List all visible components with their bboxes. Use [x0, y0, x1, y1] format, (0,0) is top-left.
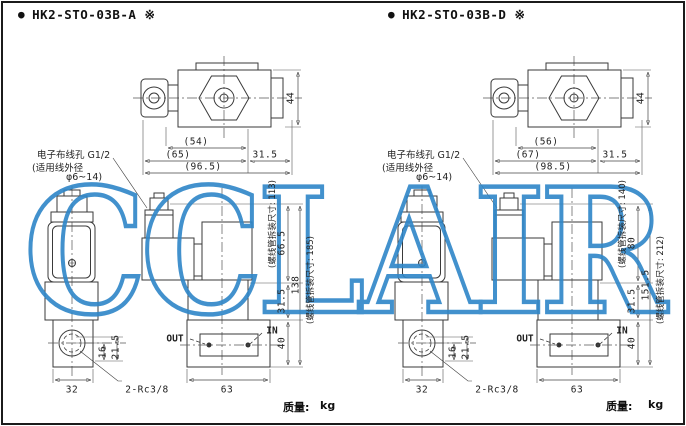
port-a-in-label: IN	[266, 326, 277, 337]
port-a-out-label: OUT	[166, 334, 183, 345]
port-d-thread-label: 2-Rc3/8	[474, 385, 520, 396]
dim-a-base-height: 40	[277, 337, 288, 349]
dim-a-front-width: 32	[65, 385, 79, 396]
dim-a-top-row2b: 31.5	[252, 150, 279, 161]
dim-d-top-row1: (56)	[533, 137, 560, 148]
conduit-note-a-line1: 电子布线孔 G1/2	[37, 147, 110, 161]
bullet-icon: ●	[388, 8, 395, 21]
weight-label-a: 质量:	[283, 399, 309, 415]
conduit-note-d-line3: φ6~14)	[416, 172, 452, 183]
port-d-in-label: IN	[616, 326, 627, 337]
dim-d-base-width: 63	[570, 385, 584, 396]
conduit-note-a-line3: φ6~14)	[66, 172, 102, 183]
dim-a-body-height: 31.5	[277, 289, 288, 314]
dim-a-total-height: 138	[291, 276, 302, 295]
weight-unit-a: kg	[320, 399, 335, 412]
conduit-note-d-line1: 电子布线孔 G1/2	[387, 147, 460, 161]
dim-d-body-height: 31.5	[627, 289, 638, 314]
figure-d-title: ● HK2-STO-03B-D ※	[388, 7, 525, 22]
valve-line-art: CCLAIR	[0, 0, 686, 426]
dim-a-top-row1: (54)	[183, 137, 210, 148]
watermark: CCLAIR	[24, 150, 668, 353]
dim-a-top-row3: (96.5)	[183, 162, 222, 173]
dim-a-top-height: 44	[286, 92, 297, 104]
dim-d-total-height: 151.5	[641, 269, 652, 300]
dim-d-port-offset2: 21.5	[461, 335, 472, 360]
drawing-sheet: CCLAIR ● HK2-STO-03B-A ※ 电子布线孔 G1/2 (适用线…	[0, 0, 686, 426]
dim-d-top-row3: (98.5)	[533, 162, 572, 173]
dim-d-top-row2b: 31.5	[602, 150, 629, 161]
port-a-thread-label: 2-Rc3/8	[124, 385, 170, 396]
note-d-solenoid-removal-upper: (螺线管拆装尺寸: 140)	[616, 180, 628, 268]
dim-d-top-height: 44	[636, 92, 647, 104]
dim-d-port-offset1: 16	[448, 346, 459, 358]
model-code-d: HK2-STO-03B-D ※	[402, 7, 525, 22]
bullet-icon: ●	[18, 8, 25, 21]
dim-a-port-offset2: 21.5	[111, 335, 122, 360]
dim-a-base-width: 63	[220, 385, 234, 396]
dim-a-coil-height: 66.5	[277, 231, 288, 256]
port-d-out-label: OUT	[516, 334, 533, 345]
figure-a-title: ● HK2-STO-03B-A ※	[18, 7, 155, 22]
dim-a-port-offset1: 16	[98, 346, 109, 358]
model-code-a: HK2-STO-03B-A ※	[32, 7, 155, 22]
dim-d-top-row2a: (67)	[515, 150, 542, 161]
dim-d-front-width: 32	[415, 385, 429, 396]
weight-label-d: 质量:	[606, 398, 632, 414]
note-a-solenoid-removal-lower: (螺线管拆装尺寸: 185)	[304, 236, 316, 324]
dim-d-coil-height: 80	[627, 237, 638, 249]
dim-a-top-row2a: (65)	[165, 150, 192, 161]
dim-d-base-height: 40	[627, 337, 638, 349]
note-d-solenoid-removal-lower: (螺线管拆装尺寸: 212)	[654, 236, 666, 324]
weight-unit-d: kg	[648, 398, 663, 411]
